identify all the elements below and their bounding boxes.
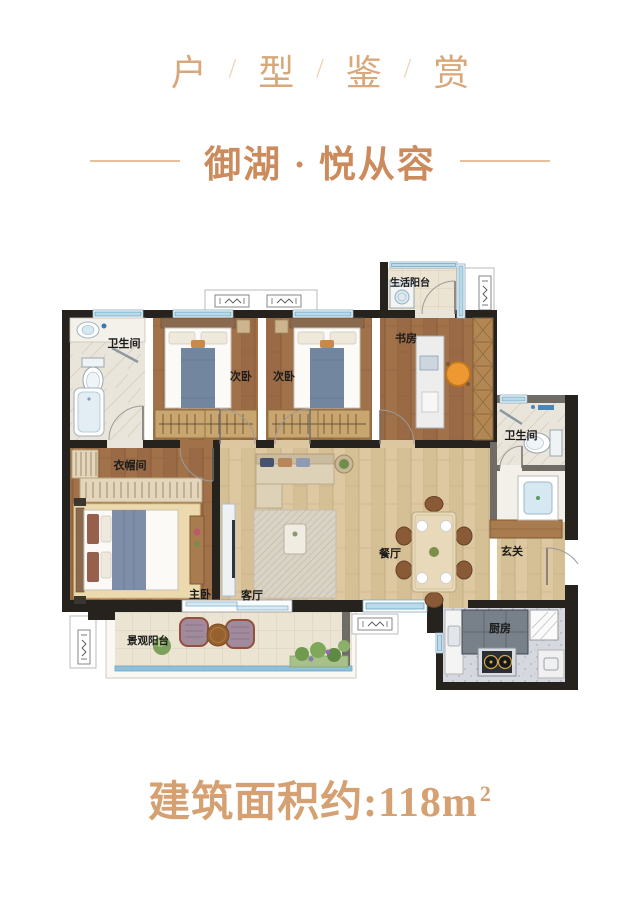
- title-char: 型: [258, 44, 294, 96]
- room-label-bed-mid: 次卧: [273, 369, 295, 383]
- room-label-master: 主卧: [189, 587, 211, 601]
- room-label-dining: 餐厅: [378, 546, 401, 560]
- floor-plan-svg: 生活阳台 卫生间 次卧 次卧 书房 卫生间 衣帽间 主卧 客厅 餐厅 玄关 厨房…: [60, 252, 580, 712]
- section-title: 御湖 · 悦从容: [0, 134, 640, 188]
- title-separator: /: [404, 53, 412, 84]
- area-text: 建筑面积约:118m2: [0, 768, 640, 829]
- title-char: 鉴: [346, 44, 382, 96]
- decor-line-left: [90, 160, 180, 162]
- room-label-bath-right: 卫生间: [505, 428, 538, 442]
- header-title: 户 / 型 / 鉴 / 赏: [0, 44, 640, 96]
- floor-plan: 生活阳台 卫生间 次卧 次卧 书房 卫生间 衣帽间 主卧 客厅 餐厅 玄关 厨房…: [60, 252, 580, 712]
- page: 户 / 型 / 鉴 / 赏 御湖 · 悦从容: [0, 0, 640, 920]
- room-label-study: 书房: [395, 331, 417, 345]
- area-label: 建筑面积约:118m: [148, 780, 478, 826]
- room-label-cloakroom: 衣帽间: [114, 458, 147, 472]
- title-char: 赏: [433, 44, 469, 96]
- title-separator: /: [229, 53, 237, 84]
- project-name: 御湖 · 悦从容: [204, 134, 436, 188]
- master-bedroom-furniture: [74, 498, 204, 604]
- room-label-view-balcony: 景观阳台: [126, 634, 169, 647]
- room-label-foyer: 玄关: [501, 544, 523, 558]
- area-superscript: 2: [480, 781, 492, 806]
- room-label-life-balcony: 生活阳台: [390, 276, 430, 289]
- room-label-kitchen: 厨房: [489, 621, 511, 635]
- room-label-bath-top: 卫生间: [108, 336, 141, 350]
- room-label-bed-left: 次卧: [230, 369, 252, 383]
- title-separator: /: [316, 53, 324, 84]
- title-char: 户: [171, 44, 207, 96]
- room-label-living: 客厅: [240, 588, 263, 602]
- decor-line-right: [460, 160, 550, 162]
